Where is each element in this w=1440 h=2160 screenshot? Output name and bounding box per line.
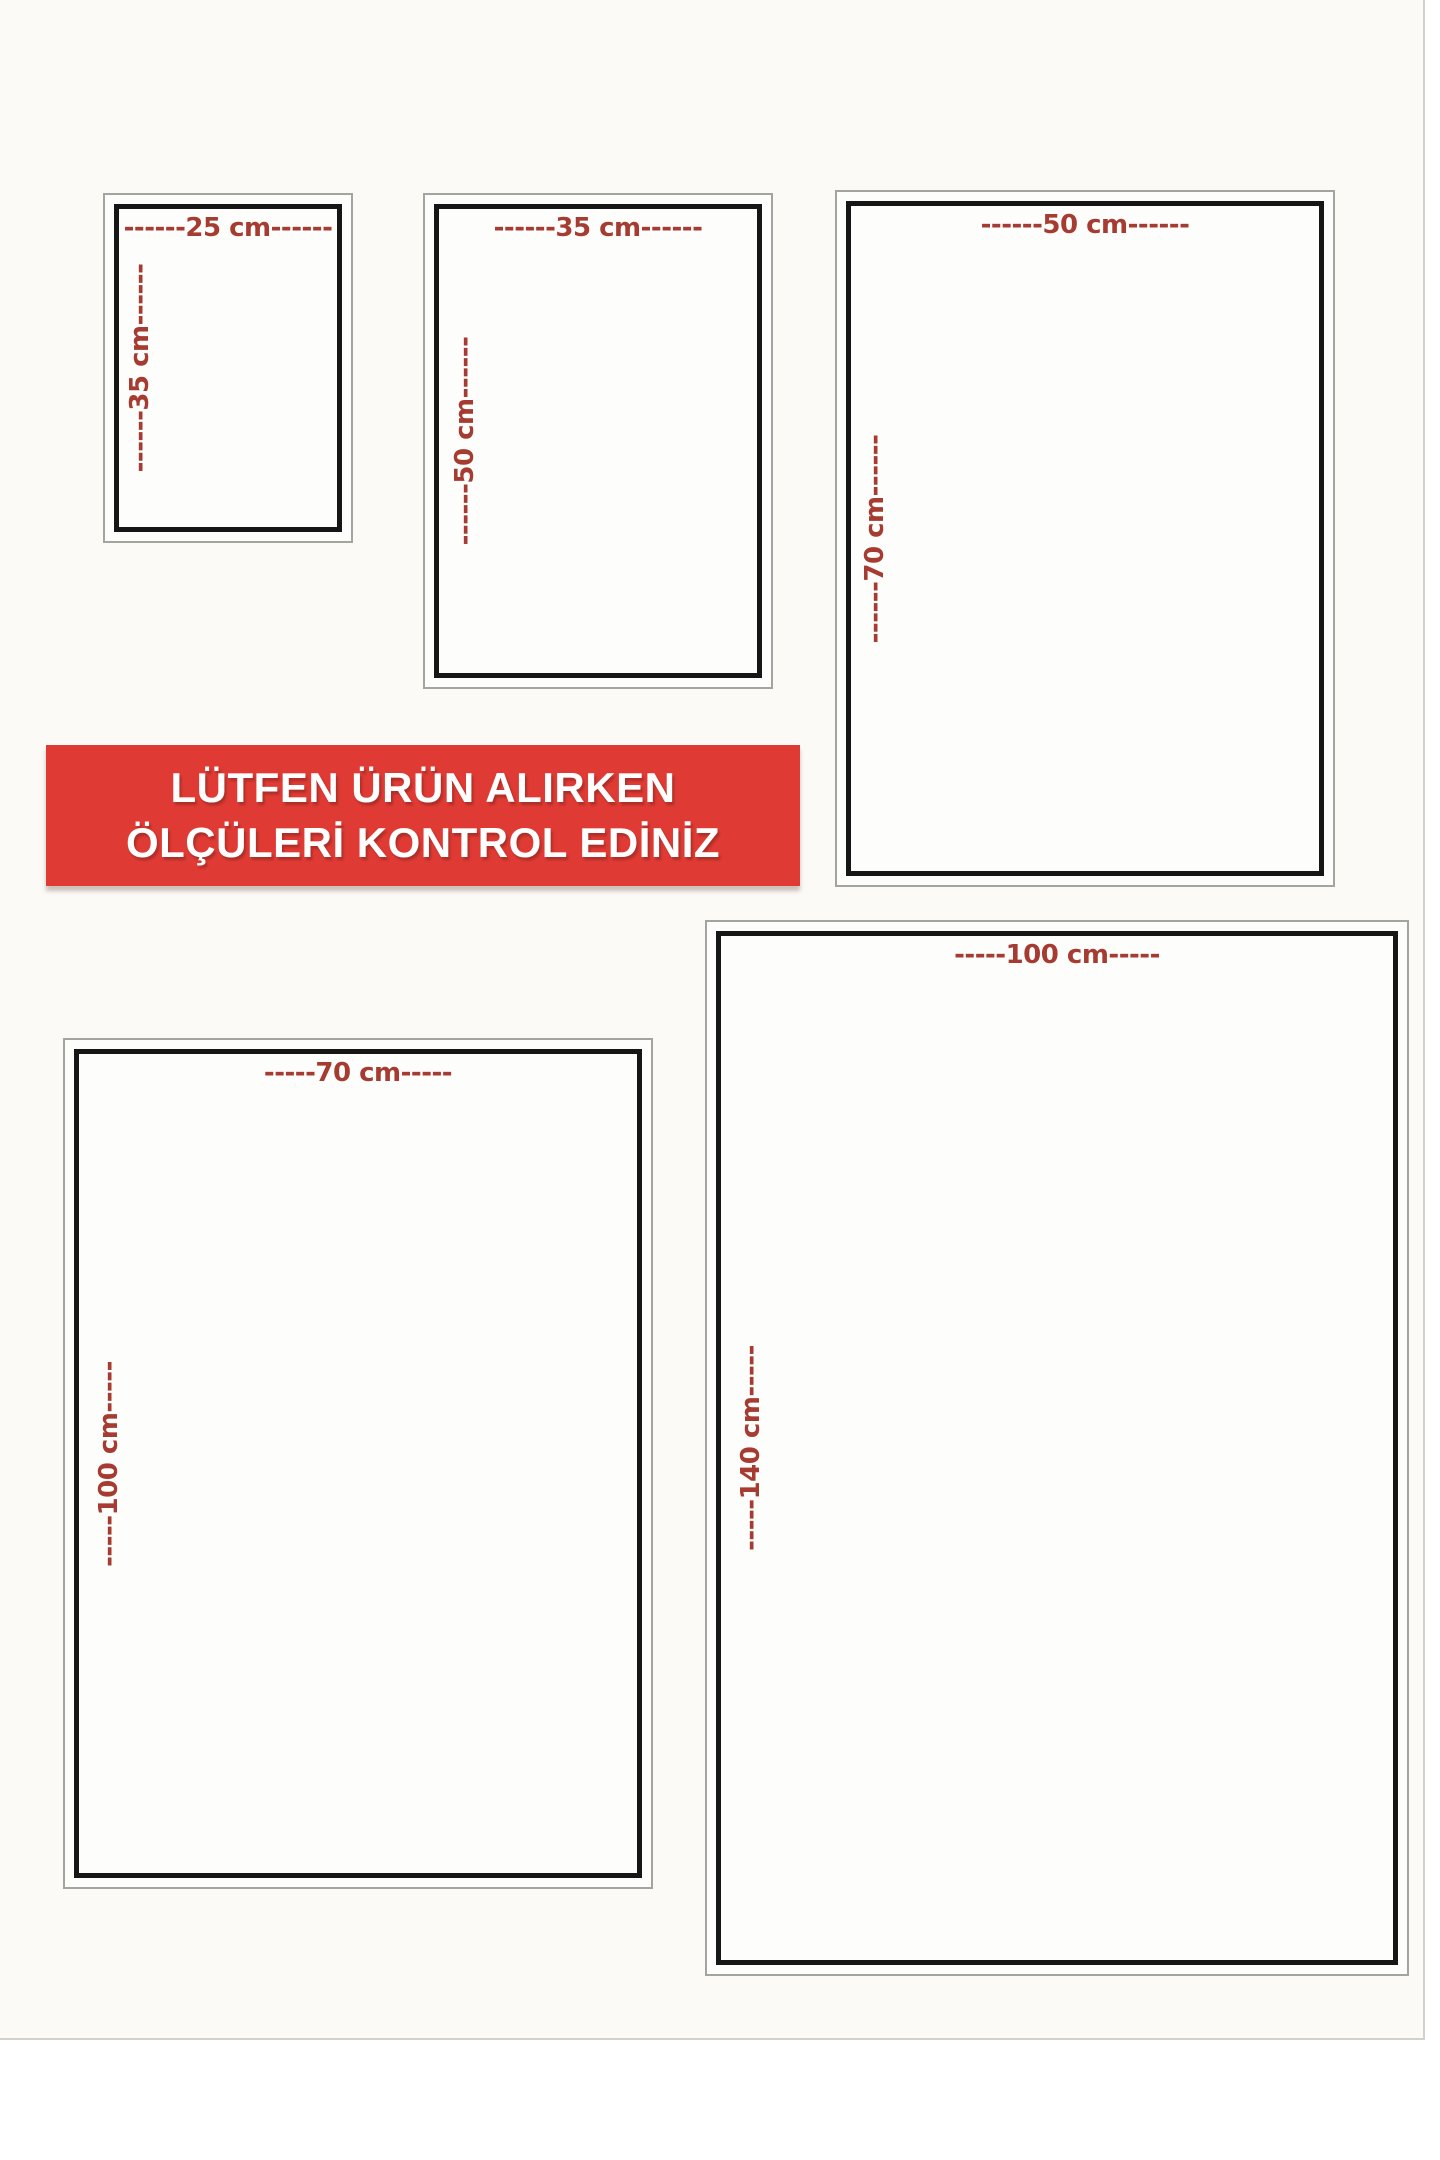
frame-100x140-inner: -----100 cm----- -----140 cm----- bbox=[716, 931, 1398, 1965]
warning-banner-line-2: ÖLÇÜLERİ KONTROL EDİNİZ bbox=[46, 816, 800, 871]
warning-banner-line-1: LÜTFEN ÜRÜN ALIRKEN bbox=[46, 761, 800, 816]
height-dimension-label-35cm: ------35 cm------ bbox=[127, 264, 153, 473]
warning-banner: LÜTFEN ÜRÜN ALIRKEN ÖLÇÜLERİ KONTROL EDİ… bbox=[46, 745, 800, 886]
frame-70x100: -----70 cm----- -----100 cm----- bbox=[63, 1038, 653, 1889]
frame-25x35-inner: ------25 cm------ ------35 cm------ bbox=[114, 204, 342, 532]
height-dimension-label-100cm: -----100 cm----- bbox=[96, 1361, 122, 1567]
width-dimension-label-70cm: -----70 cm----- bbox=[79, 1060, 637, 1086]
frame-100x140: -----100 cm----- -----140 cm----- bbox=[705, 920, 1409, 1976]
height-dimension-label-50cm: ------50 cm------ bbox=[452, 337, 478, 546]
height-dimension-label-140cm: -----140 cm----- bbox=[738, 1345, 764, 1551]
frame-35x50-inner: ------35 cm------ ------50 cm------ bbox=[434, 204, 762, 678]
frame-50x70: ------50 cm------ ------70 cm------ bbox=[835, 190, 1335, 887]
height-dimension-label-70cm: ------70 cm------ bbox=[862, 434, 888, 643]
width-dimension-label-35cm: ------35 cm------ bbox=[439, 215, 757, 241]
frame-25x35: ------25 cm------ ------35 cm------ bbox=[103, 193, 353, 543]
frame-35x50: ------35 cm------ ------50 cm------ bbox=[423, 193, 773, 689]
width-dimension-label-25cm: ------25 cm------ bbox=[119, 215, 337, 241]
frame-50x70-inner: ------50 cm------ ------70 cm------ bbox=[846, 201, 1324, 876]
frame-70x100-inner: -----70 cm----- -----100 cm----- bbox=[74, 1049, 642, 1878]
width-dimension-label-50cm: ------50 cm------ bbox=[851, 212, 1319, 238]
width-dimension-label-100cm: -----100 cm----- bbox=[721, 942, 1393, 968]
size-guide-image: ------25 cm------ ------35 cm------ ----… bbox=[0, 0, 1440, 2160]
